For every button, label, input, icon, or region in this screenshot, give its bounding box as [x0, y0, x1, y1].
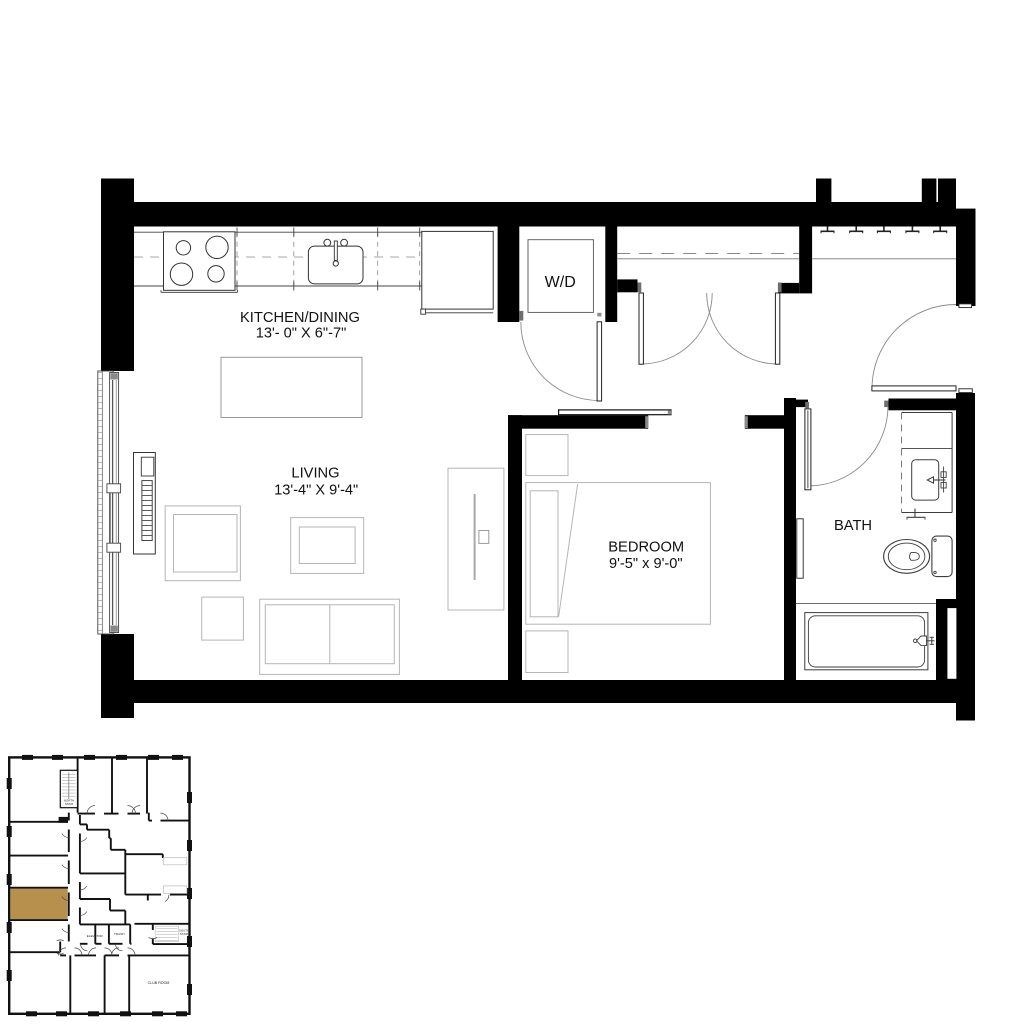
svg-text:CLUB ROOM: CLUB ROOM: [148, 981, 170, 985]
svg-text:TRASH: TRASH: [114, 932, 125, 936]
svg-text:ELEVATOR: ELEVATOR: [87, 934, 104, 938]
svg-text:KITCHEN/DINING: KITCHEN/DINING: [240, 310, 360, 326]
svg-text:BATH: BATH: [834, 518, 872, 534]
svg-text:13'-4" X 9'-4": 13'-4" X 9'-4": [274, 483, 358, 499]
svg-text:LIVING: LIVING: [291, 466, 339, 482]
svg-text:W/D: W/D: [545, 274, 576, 291]
svg-text:STAIR: STAIR: [180, 932, 188, 936]
svg-text:STAIR: STAIR: [65, 802, 74, 806]
svg-text:BEDROOM: BEDROOM: [608, 540, 684, 556]
svg-text:13'- 0" X 6"-7": 13'- 0" X 6"-7": [256, 326, 347, 342]
svg-text:9'-5" x 9'-0": 9'-5" x 9'-0": [609, 556, 683, 572]
